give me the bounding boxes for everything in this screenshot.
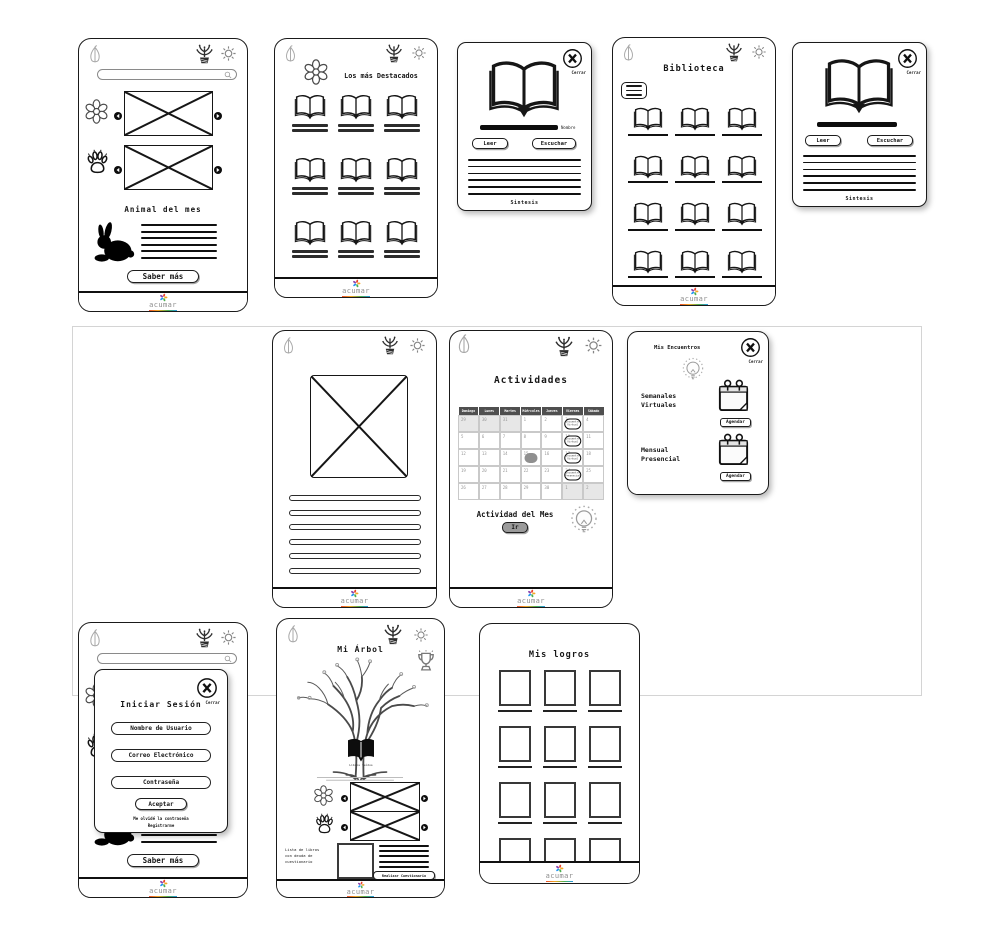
calendar-day-header: Jueves	[542, 407, 562, 415]
achievement-square	[499, 782, 531, 818]
leaf-icon[interactable]	[285, 625, 301, 645]
calendar-cell[interactable]: 20	[479, 466, 500, 483]
popup-book-detail-2: Cerrar Leer Escuchar Sintesis	[792, 42, 927, 207]
rabbit-icon	[89, 221, 137, 263]
book-author-line	[292, 255, 328, 258]
book-item[interactable]	[718, 201, 765, 231]
plant-icon[interactable]	[381, 622, 405, 646]
book-icon	[292, 156, 328, 184]
calendar-cell[interactable]: 8	[521, 432, 542, 449]
calendar-day-number: 27	[482, 485, 487, 490]
achievement-item[interactable]	[537, 726, 582, 768]
achievement-square	[589, 726, 621, 762]
book-icon	[338, 156, 374, 184]
text-line	[468, 166, 581, 168]
forgot-password-link[interactable]: Me olvidé la contraseña	[95, 816, 227, 821]
book-name-bar	[480, 125, 558, 130]
footer: acumar	[79, 877, 247, 897]
book-underline	[675, 134, 715, 136]
carousel-left-icon[interactable]	[341, 824, 348, 831]
calendar-cell[interactable]: 29	[521, 483, 542, 500]
book-icon	[384, 93, 420, 121]
aceptar-button[interactable]: Aceptar	[135, 798, 187, 810]
book-item[interactable]	[625, 249, 672, 279]
menu-button[interactable]	[621, 82, 647, 99]
calendar-day-number: 20	[482, 468, 487, 473]
book-title-line	[338, 124, 374, 127]
calendar-cell[interactable]: 31	[500, 415, 521, 432]
text-line	[141, 250, 217, 252]
calendar-day-number: 1	[524, 417, 526, 422]
text-line	[289, 524, 421, 530]
calendar-cell[interactable]: 17Encuentro Virtual	[562, 449, 583, 466]
book-author-line	[384, 129, 420, 132]
sun-icon[interactable]	[413, 627, 429, 643]
calendar-cell[interactable]: 18	[583, 449, 604, 466]
calendar-cell[interactable]: 2	[583, 483, 604, 500]
text-line	[803, 169, 916, 171]
calendar-cell[interactable]: 12	[458, 449, 479, 466]
bulb-icon	[680, 356, 706, 386]
nombre-label: Nombre	[561, 125, 575, 130]
book-icon	[725, 201, 759, 227]
book-title-line	[292, 250, 328, 253]
achievement-underline	[498, 822, 532, 825]
acumar-logo: acumar	[149, 293, 177, 311]
acumar-logo: acumar	[546, 864, 574, 882]
carousel-left-icon[interactable]	[114, 112, 122, 120]
book-icon	[484, 57, 564, 121]
acumar-logo-text: acumar	[546, 873, 574, 882]
text-line	[468, 173, 581, 175]
book-title-line	[292, 124, 328, 127]
book-icon	[725, 154, 759, 180]
calendar-day-number: 30	[544, 485, 549, 490]
email-field[interactable]: Correo Electrónico	[111, 749, 211, 762]
acumar-logo: acumar	[149, 879, 177, 897]
leaf-icon[interactable]	[455, 334, 473, 356]
calendar-day-number: 9	[544, 434, 546, 439]
achievement-underline	[498, 766, 532, 769]
carousel-right-icon[interactable]	[421, 795, 428, 802]
destacados-title: Los más Destacados	[329, 72, 433, 80]
lista-libros-label: Lista de libros con deuda de cuestionari…	[285, 847, 337, 865]
achievement-square	[499, 670, 531, 706]
flower-icon	[303, 59, 329, 85]
pending-book-box	[337, 843, 374, 879]
calendar-day-number: 7	[503, 434, 505, 439]
encuentros-title: Mis Encuentros	[654, 345, 700, 351]
book-icon	[631, 106, 665, 132]
book-underline	[722, 276, 762, 278]
flora-image-placeholder[interactable]	[350, 782, 420, 812]
calendar-cell[interactable]: 25	[583, 466, 604, 483]
mis-logros-title: Mis logros	[480, 650, 639, 660]
book-underline	[722, 181, 762, 183]
text-line	[803, 162, 916, 164]
book-item[interactable]	[625, 201, 672, 231]
flower-icon	[84, 99, 109, 124]
calendar-cell[interactable]: 27	[479, 483, 500, 500]
screen-actividades: Actividades DomingoLunesMartesMiércolesJ…	[449, 330, 613, 608]
book-underline	[628, 276, 668, 278]
calendar-day-number: 14	[503, 451, 508, 456]
carousel-left-icon[interactable]	[114, 166, 122, 174]
register-link[interactable]: Registrarme	[95, 823, 227, 828]
achievement-square	[544, 782, 576, 818]
escuchar-button[interactable]: Escuchar	[867, 135, 913, 146]
text-line	[289, 539, 421, 545]
achievement-item[interactable]	[537, 782, 582, 824]
text-line	[803, 182, 916, 184]
calendar-cell[interactable]: 26	[458, 483, 479, 500]
sun-icon[interactable]	[220, 629, 237, 646]
acumar-logo-text: acumar	[347, 889, 375, 898]
achievement-item[interactable]	[537, 670, 582, 712]
book-icon	[631, 249, 665, 275]
book-author-line	[338, 129, 374, 132]
leaf-icon[interactable]	[621, 44, 636, 63]
text-line	[141, 244, 217, 246]
calendar-day-number: 29	[461, 417, 466, 422]
paw-icon	[85, 149, 110, 175]
search-icon	[224, 655, 232, 663]
article-image-placeholder	[310, 375, 408, 478]
calendar-cell[interactable]: 7	[500, 432, 521, 449]
library-books-grid	[625, 106, 765, 278]
book-icon	[631, 154, 665, 180]
text-line	[141, 224, 217, 226]
text-line	[468, 193, 581, 195]
book-icon	[292, 219, 328, 247]
book-author-line	[338, 255, 374, 258]
calendar-day-number: 2	[544, 417, 546, 422]
calendar-day-header: Lunes	[479, 407, 499, 415]
password-field[interactable]: Contraseña	[111, 776, 211, 789]
achievement-square	[544, 726, 576, 762]
plant-icon[interactable]	[193, 626, 216, 649]
achievement-underline	[588, 766, 622, 769]
book-item[interactable]	[672, 201, 719, 231]
carousel-right-icon[interactable]	[214, 112, 222, 120]
fauna-image-placeholder[interactable]	[350, 811, 420, 841]
book-icon	[678, 154, 712, 180]
book-title-line	[384, 124, 420, 127]
book-item[interactable]	[672, 106, 719, 136]
calendar-cell[interactable]: 6	[479, 432, 500, 449]
calendar-selected-day[interactable]	[524, 453, 537, 463]
calendar-cell[interactable]: 21	[500, 466, 521, 483]
synopsis-lines	[803, 155, 916, 196]
book-icon	[678, 249, 712, 275]
book-icon	[292, 93, 328, 121]
cerrar-label: Cerrar	[572, 70, 586, 75]
book-item[interactable]	[672, 249, 719, 279]
ir-button[interactable]: Ir	[502, 522, 528, 533]
book-title-line	[338, 187, 374, 190]
calendar-day-number: 2	[586, 485, 588, 490]
search-input[interactable]	[97, 653, 237, 664]
book-item[interactable]	[333, 93, 379, 132]
calendar-cell[interactable]: 30	[479, 415, 500, 432]
calendar-cell[interactable]: 14	[500, 449, 521, 466]
achievements-grid	[492, 670, 627, 880]
sun-icon[interactable]	[584, 336, 603, 355]
flower-icon	[313, 785, 334, 806]
calendar-event-button[interactable]: Encuentro Virtual	[564, 419, 582, 430]
book-author-line	[292, 192, 328, 195]
fauna-image-placeholder[interactable]	[124, 145, 213, 190]
screen-mis-logros: Mis logros	[479, 623, 640, 884]
semanales-virtuales-label: Semanales Virtuales	[641, 392, 676, 410]
calendar-day-number: 22	[524, 468, 529, 473]
close-icon[interactable]	[897, 48, 918, 69]
footer: acumar	[450, 587, 612, 607]
leaf-icon[interactable]	[87, 45, 103, 65]
animal-text-lines	[141, 224, 217, 264]
calendar-cell[interactable]: 4	[583, 415, 604, 432]
sun-icon[interactable]	[751, 44, 767, 60]
book-icon	[338, 93, 374, 121]
flora-image-placeholder[interactable]	[124, 91, 213, 136]
actividades-title: Actividades	[450, 375, 612, 386]
book-author-line	[292, 129, 328, 132]
plant-icon[interactable]	[379, 334, 401, 356]
carousel-right-icon[interactable]	[421, 824, 428, 831]
book-item[interactable]	[718, 249, 765, 279]
calendar-day-header: Miércoles	[521, 407, 541, 415]
carousel-right-icon[interactable]	[214, 166, 222, 174]
footer: acumar	[79, 291, 247, 311]
calendar-cell[interactable]: 28	[500, 483, 521, 500]
sun-icon[interactable]	[411, 45, 427, 61]
calendar-cell[interactable]: 13	[479, 449, 500, 466]
achievement-underline	[588, 822, 622, 825]
article-text-lines	[289, 495, 421, 583]
book-item[interactable]	[333, 156, 379, 195]
book-item[interactable]	[718, 154, 765, 184]
sintesis-label: Sintesis	[458, 200, 591, 206]
text-line	[289, 553, 421, 559]
acumar-logo-text: acumar	[517, 598, 545, 607]
book-item[interactable]	[287, 93, 333, 132]
escuchar-button[interactable]: Escuchar	[532, 138, 576, 149]
sun-icon[interactable]	[220, 45, 237, 62]
book-title-line	[292, 187, 328, 190]
calendar-day-number: 4	[586, 417, 588, 422]
calendar-cell[interactable]: 30	[541, 483, 562, 500]
calendar-cell[interactable]: 22	[521, 466, 542, 483]
book-name-bar	[817, 122, 897, 127]
calendar-cell[interactable]: 29	[458, 415, 479, 432]
calendar-day-number: 8	[524, 434, 526, 439]
text-line	[468, 159, 581, 161]
sintesis-label: Sintesis	[793, 196, 926, 202]
achievement-square	[544, 670, 576, 706]
acumar-logo-text: acumar	[680, 296, 708, 305]
cerrar-label: Cerrar	[749, 359, 763, 364]
acumar-logo: acumar	[680, 287, 708, 305]
achievement-item[interactable]	[492, 726, 537, 768]
cerrar-label: Cerrar	[907, 70, 921, 75]
calendar-day-number: 31	[503, 417, 508, 422]
agendar-weekly-button[interactable]: Agendar	[720, 418, 751, 427]
leaf-icon[interactable]	[87, 629, 103, 649]
calendar-cell[interactable]: 10Encuentro Virtual	[562, 432, 583, 449]
book-item[interactable]	[625, 106, 672, 136]
calendar-day-number: 28	[503, 485, 508, 490]
book-title-line	[384, 250, 420, 253]
calendar-cell[interactable]: 5	[458, 432, 479, 449]
leaf-icon[interactable]	[283, 45, 298, 64]
calendar-event-button[interactable]: Encuentro Virtual	[564, 436, 582, 447]
calendar-day-number: 19	[461, 468, 466, 473]
calendar-day-number: 23	[544, 468, 549, 473]
text-line	[379, 855, 429, 857]
book-item[interactable]	[625, 154, 672, 184]
text-line	[141, 237, 217, 239]
calendar-day-number: 25	[586, 468, 591, 473]
text-line	[379, 845, 429, 847]
popup-mis-encuentros: Mis Encuentros Cerrar Semanales Virtuale…	[627, 331, 769, 495]
screen-mi-arbol: Mi Árbol Libros leídos Lista de libros c…	[276, 618, 445, 898]
screen-login: Saber más Cerrar Iniciar Sesión Nombre d…	[78, 622, 248, 898]
book-icon	[338, 219, 374, 247]
book-icon	[631, 201, 665, 227]
text-line	[141, 841, 217, 843]
book-underline	[722, 134, 762, 136]
screen-article: acumar	[272, 330, 437, 608]
calendar-cell[interactable]: 11	[583, 432, 604, 449]
book-author-line	[384, 255, 420, 258]
saber-mas-button[interactable]: Saber más	[127, 854, 199, 867]
book-item[interactable]	[379, 93, 425, 132]
achievement-item[interactable]	[582, 726, 627, 768]
leaf-icon[interactable]	[281, 337, 296, 356]
book-author-line	[384, 192, 420, 195]
book-item[interactable]	[287, 219, 333, 258]
calendar-day-number: 12	[461, 451, 466, 456]
book-author-line	[338, 192, 374, 195]
black-book-icon[interactable]	[345, 737, 377, 763]
book-underline	[675, 276, 715, 278]
calendar-cell[interactable]: 2	[541, 415, 562, 432]
close-icon[interactable]	[740, 337, 761, 358]
animal-del-mes-title: Animal del mes	[79, 205, 247, 214]
text-line	[379, 866, 429, 868]
notepad-icon	[716, 378, 751, 413]
text-line	[379, 861, 429, 863]
achievement-underline	[543, 766, 577, 769]
close-icon[interactable]	[562, 48, 583, 69]
book-item[interactable]	[379, 156, 425, 195]
book-underline	[628, 229, 668, 231]
screen-destacados: Los más Destacados	[274, 38, 438, 298]
saber-mas-button[interactable]: Saber más	[127, 270, 199, 283]
leer-button[interactable]: Leer	[472, 138, 508, 149]
text-line	[289, 568, 421, 574]
achievement-square	[589, 670, 621, 706]
book-item[interactable]	[287, 156, 333, 195]
calendar-cell[interactable]: 3Encuentro Virtual	[562, 415, 583, 432]
book-item[interactable]	[672, 154, 719, 184]
leer-button[interactable]: Leer	[805, 135, 841, 146]
book-icon	[725, 249, 759, 275]
book-item[interactable]	[333, 219, 379, 258]
plant-icon[interactable]	[193, 42, 216, 65]
text-line	[468, 186, 581, 188]
book-underline	[675, 181, 715, 183]
calendar-cell[interactable]: 9	[541, 432, 562, 449]
text-line	[141, 231, 217, 233]
text-line	[803, 155, 916, 157]
text-line	[141, 257, 217, 259]
book-icon	[384, 219, 420, 247]
book-underline	[722, 229, 762, 231]
login-modal: Cerrar Iniciar Sesión Nombre de Usuario …	[94, 669, 228, 833]
text-line	[803, 175, 916, 177]
book-underline	[628, 134, 668, 136]
calendar-event-button[interactable]: Encuentro Presencial	[564, 470, 582, 481]
agendar-monthly-button[interactable]: Agendar	[720, 472, 751, 481]
acumar-logo: acumar	[347, 881, 375, 898]
calendar-day-header: Martes	[500, 407, 520, 415]
acumar-logo: acumar	[341, 589, 369, 607]
text-line	[289, 510, 421, 516]
achievement-square	[499, 726, 531, 762]
calendar-cell[interactable]: 23	[541, 466, 562, 483]
calendar-day-number: 5	[461, 434, 463, 439]
paw-icon	[314, 813, 335, 835]
book-item[interactable]	[379, 219, 425, 258]
text-line	[289, 495, 421, 501]
achievement-underline	[543, 710, 577, 713]
book-icon	[725, 106, 759, 132]
plant-icon[interactable]	[383, 42, 405, 64]
calendar-cell[interactable]: 1	[521, 415, 542, 432]
calendar-cell[interactable]: 15	[521, 449, 542, 466]
plant-icon[interactable]	[723, 41, 745, 63]
sun-icon[interactable]	[409, 337, 426, 354]
carousel-left-icon[interactable]	[341, 795, 348, 802]
book-item[interactable]	[718, 106, 765, 136]
close-icon[interactable]	[196, 677, 218, 699]
calendar-event-button[interactable]: Encuentro Virtual	[564, 453, 582, 464]
footer: acumar	[613, 285, 775, 305]
calendar-cell[interactable]: 1	[562, 483, 583, 500]
acumar-logo-text: acumar	[149, 888, 177, 897]
book-title-line	[338, 250, 374, 253]
achievement-item[interactable]	[582, 782, 627, 824]
plant-icon[interactable]	[552, 334, 576, 358]
book-underline	[675, 229, 715, 231]
acumar-logo: acumar	[342, 279, 370, 297]
calendar-cell[interactable]: 16	[541, 449, 562, 466]
tree-book-caption: Libros leídos	[327, 763, 395, 767]
mensual-presencial-label: Mensual Presencial	[641, 446, 680, 464]
search-input[interactable]	[97, 69, 237, 80]
synopsis-lines	[468, 159, 581, 200]
achievement-item[interactable]	[492, 782, 537, 824]
calendar-day-header: Domingo	[459, 407, 479, 415]
biblioteca-title: Biblioteca	[613, 64, 775, 74]
username-field[interactable]: Nombre de Usuario	[111, 722, 211, 735]
achievement-item[interactable]	[582, 670, 627, 712]
calendar-cell[interactable]: 24Encuentro Presencial	[562, 466, 583, 483]
achievement-item[interactable]	[492, 670, 537, 712]
calendar-day-number: 26	[461, 485, 466, 490]
calendar-cell[interactable]: 19	[458, 466, 479, 483]
